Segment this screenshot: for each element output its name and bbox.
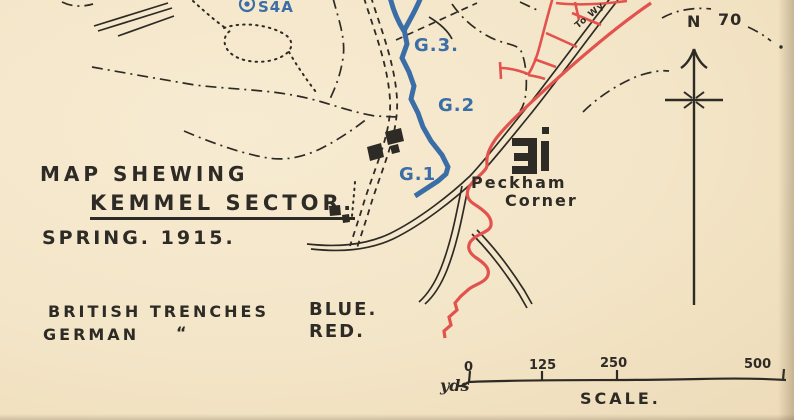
map-title-date: SPRING. 1915. — [42, 229, 236, 248]
contour-line-70 — [520, 2, 783, 49]
paper-bottom-shadow — [0, 414, 794, 420]
label-corner: Corner — [505, 193, 578, 209]
paper-edge-shadow — [778, 0, 794, 420]
scale-unit-label: yds — [440, 378, 470, 394]
north-arrow-icon — [665, 49, 723, 305]
legend-british-color: BLUE. — [309, 301, 377, 319]
map-title-line1: MAP SHEWING — [40, 164, 248, 184]
label-trench-g1: G.1 — [399, 166, 436, 184]
legend-ditto-mark: “ — [176, 325, 187, 341]
scale-tick-500: 500 — [744, 358, 771, 371]
scale-caption: SCALE. — [580, 391, 661, 407]
map-title-sector: KEMMEL SECTOR. — [90, 193, 355, 220]
scale-tick-125: 125 — [529, 359, 556, 372]
legend-british-label: BRITISH TRENCHES — [48, 304, 269, 320]
legend-german-label: GERMAN — [43, 327, 139, 343]
map-document: MAP SHEWING KEMMEL SECTOR. SPRING. 1915.… — [0, 0, 794, 420]
label-peckham: Peckham — [471, 175, 567, 191]
label-contour-70: 70 — [718, 12, 742, 28]
scale-tick-250: 250 — [600, 357, 627, 370]
strongpoint-icon — [240, 0, 254, 11]
label-trench-g2: G.2 — [438, 97, 475, 115]
scale-tick-0: 0 — [464, 361, 473, 374]
scale-bar — [457, 369, 786, 386]
label-trench-g3: G.3. — [414, 37, 459, 55]
label-north: N — [687, 14, 700, 30]
railway-line — [350, 0, 397, 248]
label-strongpoint-s4a: S4A — [258, 0, 294, 15]
legend-german-color: RED. — [309, 323, 365, 341]
